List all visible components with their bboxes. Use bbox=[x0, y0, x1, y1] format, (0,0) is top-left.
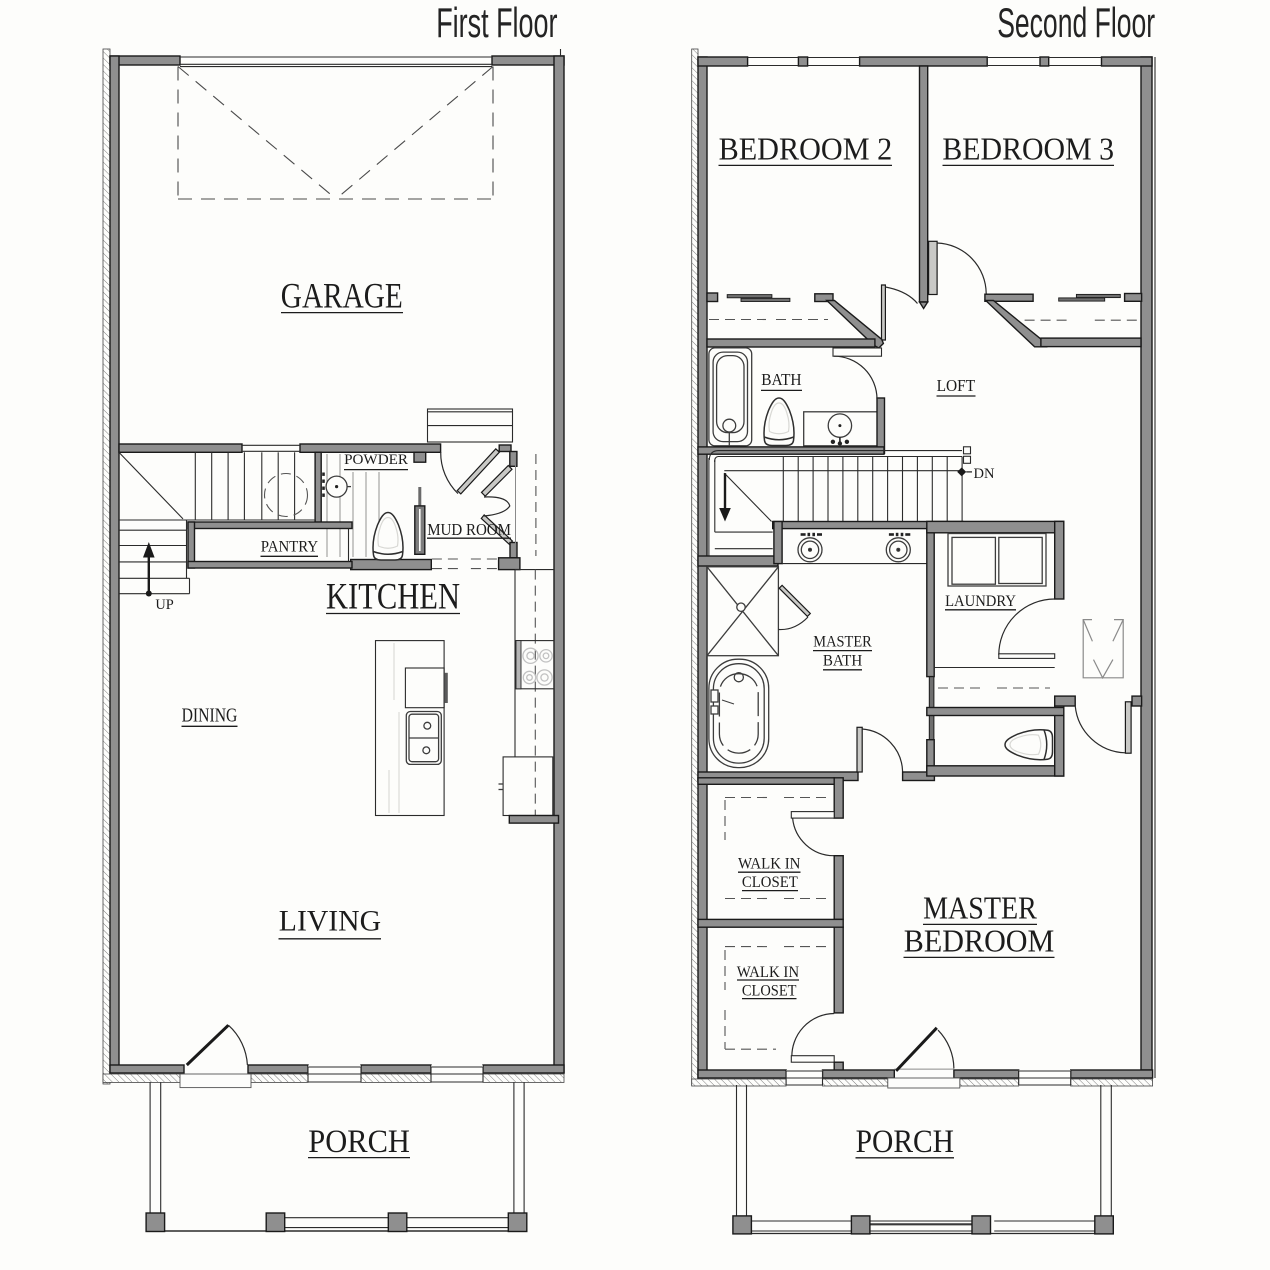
svg-text:LAUNDRY: LAUNDRY bbox=[945, 593, 1016, 610]
svg-text:CLOSET: CLOSET bbox=[742, 982, 797, 999]
svg-text:PORCH: PORCH bbox=[308, 1124, 410, 1160]
svg-text:LOFT: LOFT bbox=[937, 376, 976, 395]
svg-text:WALK IN: WALK IN bbox=[737, 964, 799, 981]
svg-text:BATH: BATH bbox=[761, 370, 801, 389]
svg-text:DINING: DINING bbox=[182, 704, 238, 726]
svg-text:POWDER: POWDER bbox=[344, 452, 408, 468]
svg-text:MASTER: MASTER bbox=[813, 634, 872, 651]
svg-text:GARAGE: GARAGE bbox=[281, 276, 403, 316]
svg-text:LIVING: LIVING bbox=[279, 905, 381, 937]
svg-text:BEDROOM 2: BEDROOM 2 bbox=[719, 131, 893, 167]
svg-text:WALK IN: WALK IN bbox=[738, 856, 800, 873]
svg-text:UP: UP bbox=[155, 597, 173, 613]
svg-text:BEDROOM 3: BEDROOM 3 bbox=[942, 131, 1114, 167]
svg-text:CLOSET: CLOSET bbox=[742, 874, 798, 891]
svg-text:DN: DN bbox=[974, 466, 995, 482]
svg-text:BEDROOM: BEDROOM bbox=[904, 923, 1055, 959]
svg-text:First Floor: First Floor bbox=[436, 0, 557, 46]
svg-text:MASTER: MASTER bbox=[923, 890, 1037, 926]
svg-text:PANTRY: PANTRY bbox=[261, 538, 319, 555]
svg-text:PORCH: PORCH bbox=[856, 1124, 954, 1160]
svg-text:BATH: BATH bbox=[823, 653, 863, 670]
svg-text:MUD ROOM: MUD ROOM bbox=[427, 520, 511, 539]
svg-text:KITCHEN: KITCHEN bbox=[326, 576, 460, 617]
svg-text:Second Floor: Second Floor bbox=[997, 0, 1155, 46]
